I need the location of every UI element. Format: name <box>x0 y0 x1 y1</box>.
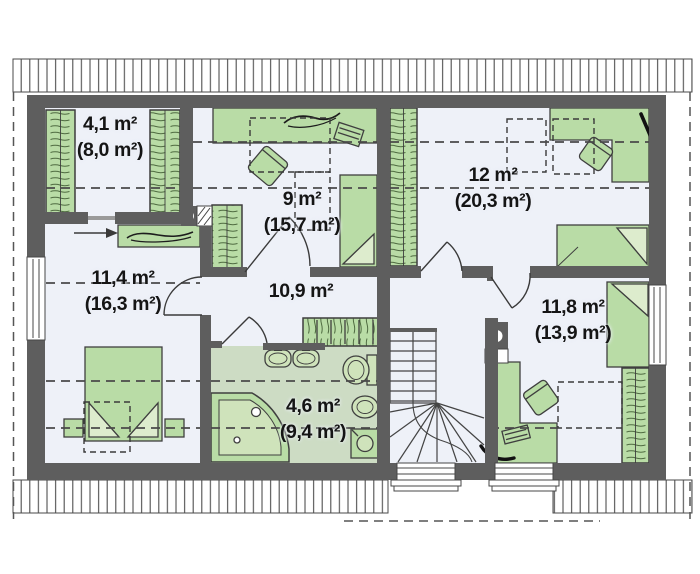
room-label-bedroom-bottom-right: 11,8 m² (13,9 m²) <box>535 294 612 346</box>
wall-bottom <box>455 463 495 480</box>
wall-interior <box>207 267 247 277</box>
window-icon <box>27 257 45 340</box>
single-bed-icon <box>607 282 649 367</box>
wall-interior <box>462 266 487 278</box>
room-label-hallway: 10,9 m² <box>269 278 333 304</box>
eave-band-top <box>13 59 692 92</box>
room-area-gross: (13,9 m²) <box>535 320 612 346</box>
wardrobe-icon <box>390 108 417 266</box>
room-area: 11,8 m² <box>541 296 604 318</box>
wall-interior <box>377 266 421 278</box>
room-area: 12 m² <box>469 164 518 186</box>
washbasin-counter <box>263 343 325 350</box>
wall-interior <box>200 315 211 463</box>
wall-bottom <box>553 463 666 480</box>
room-area-gross: (20,3 m²) <box>455 188 532 214</box>
wall-interior <box>180 95 193 224</box>
room-area-gross: (9,4 m²) <box>280 419 346 445</box>
wardrobe-icon <box>150 110 180 220</box>
wardrobe-icon <box>622 368 649 463</box>
wall-left <box>27 108 45 257</box>
room-area: 4,6 m² <box>286 395 340 417</box>
wall-top <box>27 95 666 108</box>
wall-right <box>649 108 666 285</box>
room-label-wardrobe-closet: 4,1 m² (8,0 m²) <box>77 111 143 163</box>
window-icon <box>649 285 666 365</box>
room-area-gross: (16,3 m²) <box>85 291 162 317</box>
eave-band-bottom-left <box>13 480 388 513</box>
wall-interior <box>310 267 377 277</box>
double-bed-icon <box>557 225 649 267</box>
wall-interior <box>485 318 498 463</box>
shelf-unit-icon <box>303 318 383 346</box>
washing-machine-icon <box>351 429 379 458</box>
bidet-icon <box>352 396 378 418</box>
wardrobe-icon <box>212 205 242 268</box>
room-label-bedroom-left: 11,4 m² (16,3 m²) <box>85 265 162 317</box>
room-area-gross: (8,0 m²) <box>77 137 143 163</box>
room-area: 9 m² <box>283 188 322 210</box>
room-label-bathroom: 4,6 m² (9,4 m²) <box>280 393 346 445</box>
door-threshold <box>88 216 115 220</box>
room-label-bedroom-top-middle: 9 m² (15,7 m²) <box>264 186 341 238</box>
dresser-icon <box>118 225 200 247</box>
wall-interior <box>530 266 666 278</box>
floor-plan-canvas: 4,1 m² (8,0 m²) 9 m² (15,7 m²) 12 m² (20… <box>0 0 700 574</box>
double-bed-icon <box>85 347 162 441</box>
wall-interior <box>377 95 390 463</box>
room-area-gross: (15,7 m²) <box>264 212 341 238</box>
room-area: 10,9 m² <box>269 280 333 302</box>
wall-right <box>649 365 666 480</box>
wall-interior <box>27 212 88 224</box>
window-icon <box>391 463 461 491</box>
wall-interior <box>207 341 222 348</box>
window-icon <box>489 463 559 491</box>
wall-interior <box>115 212 193 224</box>
wall-bottom <box>27 463 397 480</box>
room-area: 4,1 m² <box>83 113 137 135</box>
room-area: 11,4 m² <box>91 267 154 289</box>
room-label-bedroom-top-right: 12 m² (20,3 m²) <box>455 162 532 214</box>
stair-edge <box>388 328 437 332</box>
eave-band-bottom-right <box>553 480 692 513</box>
wardrobe-icon <box>46 110 75 220</box>
wall-left <box>27 340 45 480</box>
